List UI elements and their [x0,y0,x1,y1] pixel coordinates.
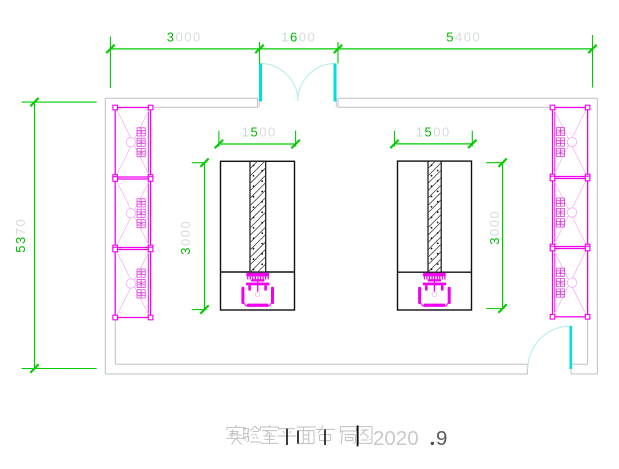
svg-text:6: 6 [290,30,297,45]
svg-text:0: 0 [487,211,502,218]
svg-text:0: 0 [178,221,193,228]
svg-text:3: 3 [167,30,174,45]
svg-text:4: 4 [455,30,462,45]
svg-text:0: 0 [487,220,502,227]
svg-text:1: 1 [416,125,423,140]
svg-text:5: 5 [251,125,258,140]
svg-text:0: 0 [184,30,191,45]
svg-text:0: 0 [442,125,449,140]
svg-text:0: 0 [259,125,266,140]
svg-text:0: 0 [13,219,28,226]
svg-text:0: 0 [193,30,200,45]
svg-text:3: 3 [487,237,502,244]
svg-text:5: 5 [13,245,28,252]
svg-text:9: 9 [436,427,447,450]
svg-text:0: 0 [178,239,193,246]
svg-text:0: 0 [464,30,471,45]
svg-text:1: 1 [242,125,249,140]
svg-text:0: 0 [176,30,183,45]
svg-text:0: 0 [178,230,193,237]
svg-text:2020: 2020 [373,427,419,450]
svg-text:0: 0 [308,30,315,45]
svg-text:0: 0 [433,125,440,140]
svg-text:3: 3 [13,237,28,244]
svg-text:0: 0 [487,229,502,236]
svg-text:7: 7 [13,228,28,235]
svg-text:0: 0 [268,125,275,140]
svg-text:1: 1 [281,30,288,45]
svg-text:0: 0 [473,30,480,45]
svg-text:0: 0 [299,30,306,45]
svg-text:5: 5 [425,125,432,140]
svg-text:5: 5 [446,30,453,45]
svg-text:3: 3 [178,247,193,254]
